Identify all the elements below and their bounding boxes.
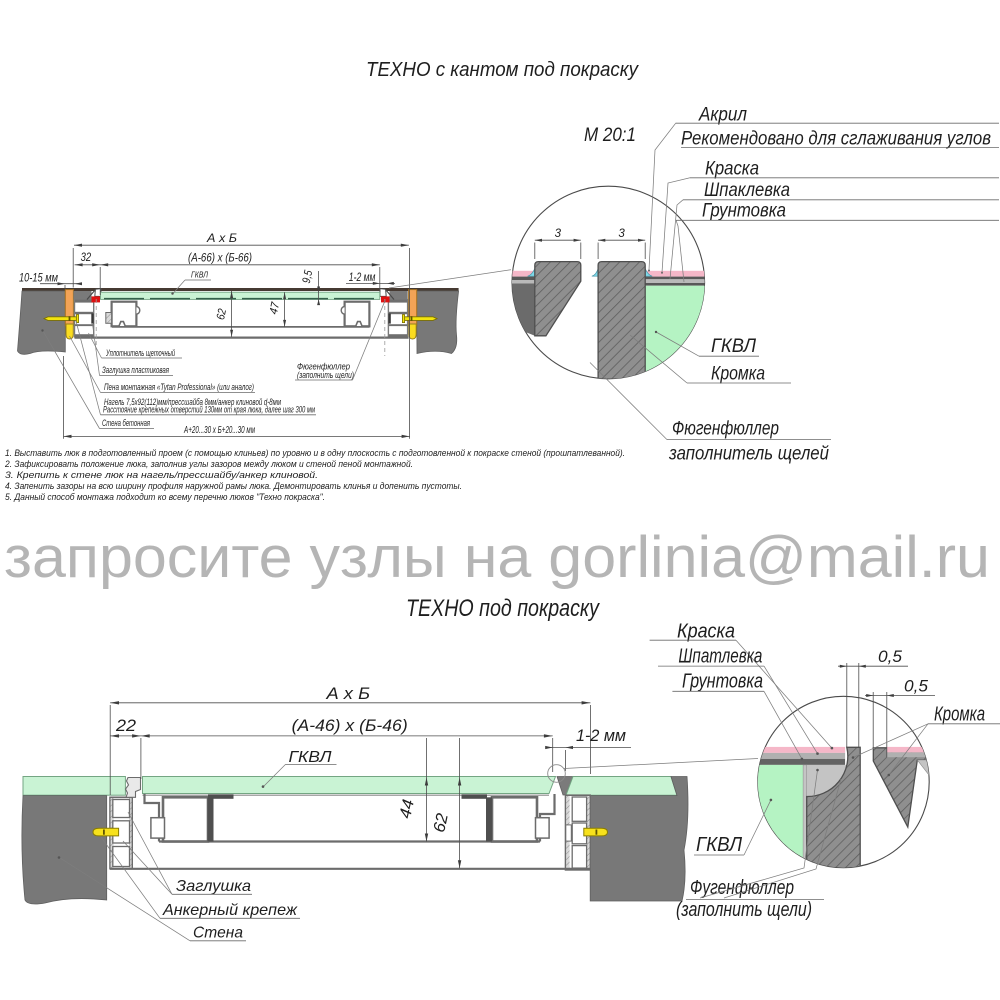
svg-text:Расстояние крепежных отверстий: Расстояние крепежных отверстий 130мм от … [103,405,315,416]
svg-text:(заполнить щели): (заполнить щели) [676,899,812,921]
svg-text:0,5: 0,5 [878,648,903,666]
svg-text:2. Зафиксировать положение люк: 2. Зафиксировать положение люка, заполни… [4,459,413,469]
svg-text:Кромка: Кромка [934,704,985,726]
svg-text:Стена бетонная: Стена бетонная [102,418,150,429]
svg-text:Анкерный крепеж: Анкерный крепеж [162,902,298,919]
svg-text:Рекомендовано для сглаживания: Рекомендовано для сглаживания углов [681,129,991,150]
svg-text:1-2 мм: 1-2 мм [349,272,376,284]
svg-text:Краска: Краска [677,621,735,643]
svg-text:Краска: Краска [705,159,759,180]
svg-text:запросите узлы на gorlinia@mai: запросите узлы на gorlinia@mail.ru [4,525,990,590]
svg-text:22: 22 [115,717,136,735]
svg-text:Пена монтажная «Tytan Professi: Пена монтажная «Tytan Professional» (или… [104,382,254,393]
svg-text:ГКВЛ: ГКВЛ [696,834,742,856]
svg-text:Грунтовка: Грунтовка [682,671,763,693]
svg-text:заполнитель щелей: заполнитель щелей [668,444,829,465]
svg-text:М 20:1: М 20:1 [584,125,636,146]
svg-text:Фюгенфюллер: Фюгенфюллер [672,419,779,440]
svg-text:Акрил: Акрил [698,105,747,126]
svg-text:ГКВЛ: ГКВЛ [191,270,208,280]
svg-text:(заполнить щели): (заполнить щели) [297,370,354,381]
svg-text:Фугенфюллер: Фугенфюллер [690,877,794,899]
svg-text:Заглушка пластиковая: Заглушка пластиковая [102,365,169,376]
svg-text:ГКВЛ: ГКВЛ [289,749,332,766]
svg-text:А х Б: А х Б [325,685,370,703]
svg-text:Шпаклевка: Шпаклевка [704,180,790,201]
svg-text:А х Б: А х Б [206,233,238,245]
svg-text:ГКВЛ: ГКВЛ [711,336,757,357]
svg-text:5. Данный способ монтажа подхо: 5. Данный способ монтажа подходит ко все… [5,492,325,502]
svg-text:10-15 мм: 10-15 мм [19,273,58,285]
svg-text:3: 3 [618,228,625,240]
svg-text:ТЕХНО с кантом под покраску: ТЕХНО с кантом под покраску [366,59,639,81]
svg-text:32: 32 [81,252,92,264]
svg-text:0,5: 0,5 [904,678,929,696]
svg-text:1-2 мм: 1-2 мм [576,727,626,745]
svg-text:ТЕХНО под покраску: ТЕХНО под покраску [406,595,601,622]
svg-text:(А-46) х (Б-46): (А-46) х (Б-46) [292,717,408,735]
svg-text:(А-66) х (Б-66): (А-66) х (Б-66) [188,253,252,265]
svg-text:Стена: Стена [193,925,243,942]
svg-text:Кромка: Кромка [711,364,765,385]
svg-text:1. Выставить люк в подготовлен: 1. Выставить люк в подготовленный проем … [5,448,625,458]
svg-text:А+20...30 х Б+20...30 мм: А+20...30 х Б+20...30 мм [183,425,255,436]
svg-text:Шпатлевка: Шпатлевка [678,646,762,668]
svg-text:4. Запенить зазоры на всю шири: 4. Запенить зазоры на всю ширину профиля… [5,481,462,491]
svg-text:Уплотнитель щеточный: Уплотнитель щеточный [105,348,175,359]
svg-text:Заглушка: Заглушка [176,878,251,895]
svg-text:Грунтовка: Грунтовка [702,201,786,222]
svg-text:3. Крепить к стене люк на наге: 3. Крепить к стене люк на нагель/прессша… [5,470,318,480]
svg-text:3: 3 [555,228,562,240]
